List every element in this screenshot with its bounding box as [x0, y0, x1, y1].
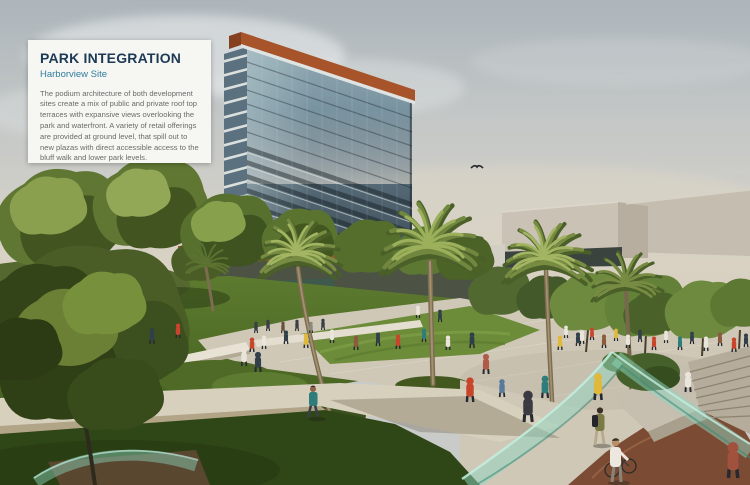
card-title: PARK INTEGRATION	[40, 51, 199, 66]
info-card: PARK INTEGRATION Harborview Site The pod…	[28, 40, 211, 163]
presentation-slide: PARK INTEGRATION Harborview Site The pod…	[0, 0, 750, 485]
card-body: The podium architecture of both developm…	[40, 89, 199, 164]
card-subtitle: Harborview Site	[40, 69, 199, 80]
